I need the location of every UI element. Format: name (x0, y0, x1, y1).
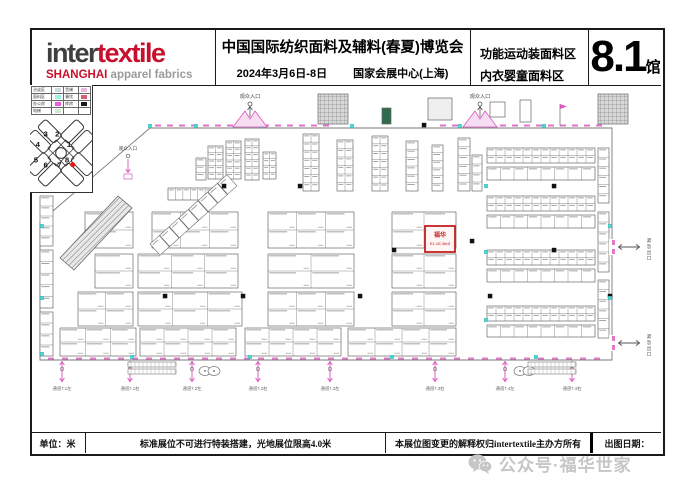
legend-label: 洽谈区 (32, 87, 52, 94)
logo-shanghai: SHANGHAI (46, 69, 107, 81)
header-divider-3 (588, 28, 589, 85)
expo-title-block: 中国国际纺织面料及辅料(春夏)博览会 2024年3月6日-8日国家会展中心(上海… (217, 36, 468, 81)
watermark-text: 公众号·福华世家 (499, 451, 632, 476)
hall-number: 8.1 (590, 32, 645, 82)
minimap-hall-number: 1 (67, 140, 72, 149)
legend-table: 洽谈区货梯面料区餐饮办公房库房电梯 (31, 86, 91, 115)
legend-swatch (52, 101, 64, 108)
zone-names: 功能运动装面料区 内衣婴童面料区 (480, 43, 586, 87)
minimap-hall-number: 2 (55, 129, 60, 138)
sheet-frame (30, 28, 665, 456)
zone-line-1: 功能运动装面料区 (480, 43, 586, 65)
expo-title: 中国国际纺织面料及辅料(春夏)博览会 (217, 36, 468, 57)
legend-swatch (52, 108, 64, 115)
legend-swatch (78, 87, 90, 94)
minimap-hall-number: 7 (57, 161, 61, 170)
legend-label: 电梯 (32, 108, 52, 115)
legend-swatch (52, 94, 64, 101)
wechat-icon (468, 453, 492, 475)
venue-minimap: 32415678 (30, 116, 92, 190)
logo-inter: inter (46, 38, 97, 68)
footer-strip: 单位：米 标准展位不可进行特装搭建，光地展位限高4.0米 本展位图变更的解释权归… (30, 432, 661, 453)
minimap-hall-number: 6 (43, 161, 48, 170)
expo-date: 2024年3月6日-8日 (237, 68, 328, 80)
zone-line-2: 内衣婴童面料区 (480, 65, 586, 87)
watermark: 公众号·福华世家 (468, 451, 632, 476)
legend-swatch (78, 94, 90, 101)
sidebar: 洽谈区货梯面料区餐饮办公房库房电梯 32415678 (30, 85, 93, 193)
legend-swatch (52, 87, 64, 94)
header-divider-1 (215, 28, 216, 85)
hall-number-badge: 8.1 馆 (590, 30, 661, 84)
minimap-hall-number: 4 (36, 140, 41, 149)
legend-label: 办公房 (32, 101, 52, 108)
intertextile-logo: intertextile SHANGHAI apparel fabrics (46, 40, 192, 82)
legend-swatch (78, 108, 90, 115)
current-hall-dot (70, 162, 75, 167)
legend-label: 餐饮 (64, 94, 79, 101)
floorplan-page: 观众入口观众入口观众入口紧急出口紧急出口通道7.1左通道7.1右通道7.2左通道… (0, 0, 692, 490)
logo-textile: textile (97, 38, 165, 68)
logo-tagline: apparel fabrics (111, 69, 193, 81)
footer-unit: 单位：米 (30, 433, 85, 453)
minimap-hall-number: 8 (65, 156, 70, 165)
minimap-hall-number: 3 (43, 129, 48, 138)
legend-swatch (78, 101, 90, 108)
legend-label: 库房 (64, 101, 79, 108)
footer-date: 出图日期： (590, 433, 661, 453)
legend-label: 货梯 (64, 87, 79, 94)
legend-label (64, 108, 79, 115)
footer-rules: 标准展位不可进行特装搭建，光地展位限高4.0米 (85, 433, 385, 453)
minimap-hall-number: 5 (34, 156, 39, 165)
legend-label: 面料区 (32, 94, 52, 101)
footer-rights: 本展位图变更的解释权归intertextile主办方所有 (385, 433, 590, 453)
header-divider-2 (470, 28, 471, 85)
hall-suffix: 馆 (646, 56, 661, 77)
expo-venue: 国家会展中心(上海) (353, 68, 448, 80)
